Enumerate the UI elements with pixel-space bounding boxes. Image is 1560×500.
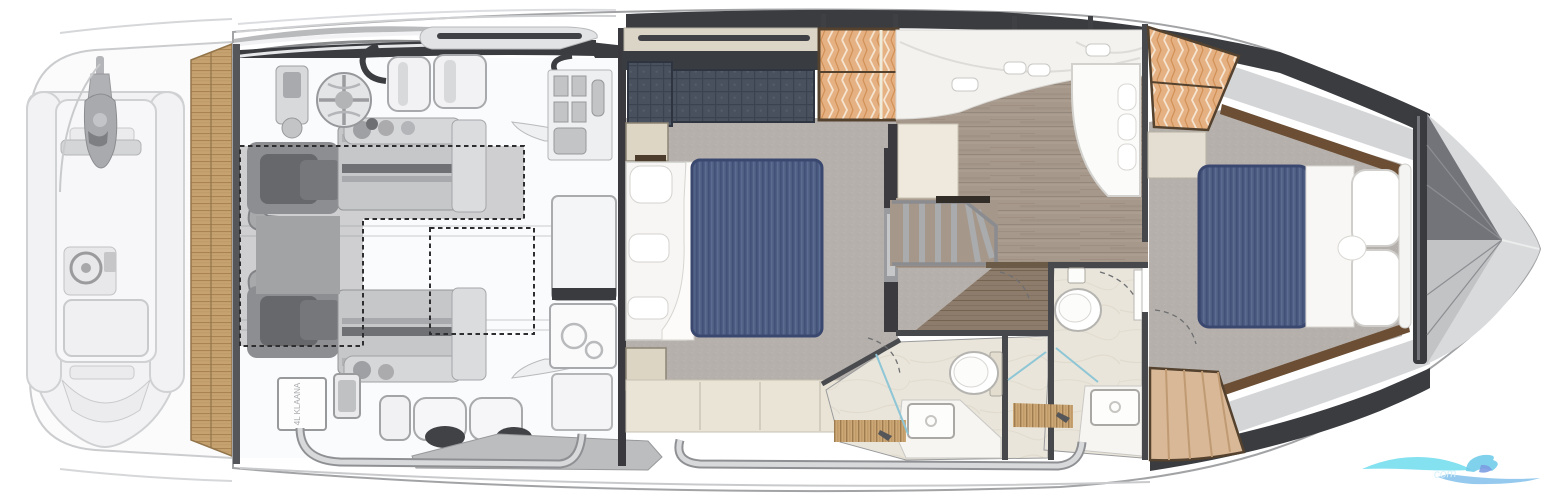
- svg-text:4L KLAANA: 4L KLAANA: [293, 382, 302, 425]
- svg-text:com: com: [1433, 466, 1456, 481]
